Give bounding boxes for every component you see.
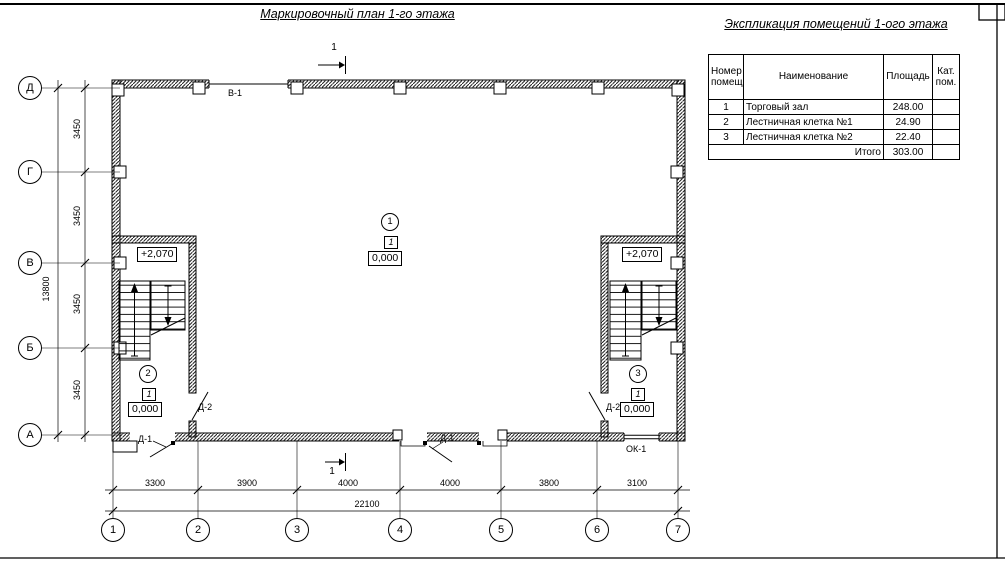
staircase-left bbox=[119, 281, 185, 360]
window-tag-ok1: ОК-1 bbox=[626, 444, 646, 454]
dim-left-1: 3450 bbox=[72, 114, 82, 144]
axis-bubble-7: 7 bbox=[666, 518, 690, 542]
room-area-cell: 22.40 bbox=[884, 130, 933, 145]
section-number-top: 1 bbox=[328, 42, 340, 53]
room-category-cell bbox=[933, 100, 960, 115]
axis-bubble-1: 1 bbox=[101, 518, 125, 542]
door-tag-d1-center: Д-1 bbox=[440, 433, 454, 443]
axis-bubble-b: Б bbox=[18, 336, 42, 360]
room-number-cell: 2 bbox=[709, 115, 744, 130]
room-name-cell: Лестничная клетка №1 bbox=[744, 115, 884, 130]
total-value-cell: 303.00 bbox=[884, 145, 933, 160]
plan-title: Маркировочный план 1-го этажа bbox=[230, 7, 485, 21]
room-marker-3: 3 bbox=[629, 365, 647, 383]
table-row: 2 Лестничная клетка №1 24.90 bbox=[709, 115, 960, 130]
category-box-1: 1 bbox=[384, 236, 398, 249]
room-name-cell: Лестничная клетка №2 bbox=[744, 130, 884, 145]
level-box-upper-right: +2,070 bbox=[622, 247, 662, 262]
room-number-cell: 3 bbox=[709, 130, 744, 145]
explication-table: Номер помещ. Наименование Площадь Кат. п… bbox=[708, 54, 960, 160]
dim-bottom-1: 3300 bbox=[135, 478, 175, 488]
level-box-upper-left: +2,070 bbox=[137, 247, 177, 262]
axis-bubble-g: Г bbox=[18, 160, 42, 184]
category-box-3: 1 bbox=[631, 388, 645, 401]
door-tag-d1-left: Д-1 bbox=[138, 434, 152, 444]
axis-bubble-6: 6 bbox=[585, 518, 609, 542]
door-tag-d2-left: Д-2 bbox=[198, 402, 212, 412]
axis-bubble-3: 3 bbox=[285, 518, 309, 542]
room-name-cell: Торговый зал bbox=[744, 100, 884, 115]
door-tag-d2-right: Д-2 bbox=[606, 402, 620, 412]
axis-bubble-v: В bbox=[18, 251, 42, 275]
dim-left-total: 13800 bbox=[41, 274, 51, 304]
room-marker-2: 2 bbox=[139, 365, 157, 383]
level-box-zero-center: 0,000 bbox=[368, 251, 402, 266]
axis-bubble-a: А bbox=[18, 423, 42, 447]
dim-left-2: 3450 bbox=[72, 201, 82, 231]
table-total-row: Итого 303.00 bbox=[709, 145, 960, 160]
room-category-cell bbox=[933, 130, 960, 145]
col-header-number: Номер помещ. bbox=[709, 55, 744, 100]
doors bbox=[150, 392, 605, 462]
dim-bottom-5: 3800 bbox=[529, 478, 569, 488]
room-number-cell: 1 bbox=[709, 100, 744, 115]
table-row: 1 Торговый зал 248.00 bbox=[709, 100, 960, 115]
level-box-zero-left: 0,000 bbox=[128, 402, 162, 417]
category-box-2: 1 bbox=[142, 388, 156, 401]
windows bbox=[209, 80, 659, 441]
total-category-cell bbox=[933, 145, 960, 160]
table-row: 3 Лестничная клетка №2 22.40 bbox=[709, 130, 960, 145]
section-marks bbox=[318, 56, 346, 471]
room-category-cell bbox=[933, 115, 960, 130]
level-box-zero-right: 0,000 bbox=[620, 402, 654, 417]
dim-bottom-6: 3100 bbox=[617, 478, 657, 488]
axis-bubble-4: 4 bbox=[388, 518, 412, 542]
total-label-cell: Итого bbox=[709, 145, 884, 160]
dim-bottom-total: 22100 bbox=[347, 499, 387, 509]
drawing-sheet: Маркировочный план 1-го этажа Экспликаци… bbox=[0, 0, 1005, 565]
dim-left-3: 3450 bbox=[72, 289, 82, 319]
columns bbox=[112, 82, 684, 452]
window-tag-v1: В-1 bbox=[228, 88, 242, 98]
axis-bubble-2: 2 bbox=[186, 518, 210, 542]
room-marker-1: 1 bbox=[381, 213, 399, 231]
dim-bottom-2: 3900 bbox=[227, 478, 267, 488]
section-number-bottom: 1 bbox=[326, 466, 338, 477]
explication-title: Экспликация помещений 1-ого этажа bbox=[712, 17, 960, 31]
axis-bubble-d: Д bbox=[18, 76, 42, 100]
col-header-area: Площадь bbox=[884, 55, 933, 100]
col-header-name: Наименование bbox=[744, 55, 884, 100]
room-area-cell: 248.00 bbox=[884, 100, 933, 115]
axis-bubble-5: 5 bbox=[489, 518, 513, 542]
col-header-category: Кат. пом. bbox=[933, 55, 960, 100]
dim-bottom-3: 4000 bbox=[328, 478, 368, 488]
room-area-cell: 24.90 bbox=[884, 115, 933, 130]
dim-bottom-4: 4000 bbox=[430, 478, 470, 488]
dim-left-4: 3450 bbox=[72, 375, 82, 405]
staircase-right bbox=[610, 281, 676, 360]
